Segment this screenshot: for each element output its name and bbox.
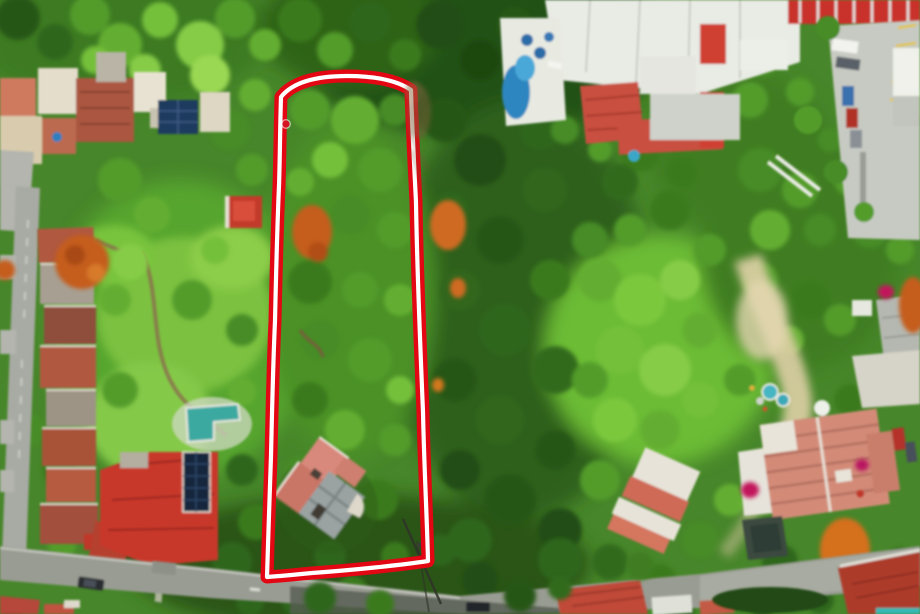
umbrella	[544, 32, 554, 42]
teal-roof-sliver	[876, 608, 920, 614]
small-red-house	[225, 196, 262, 228]
tiny-pool	[628, 150, 640, 162]
aerial-photo	[0, 0, 920, 614]
dark-car	[466, 602, 490, 612]
garden-pool	[172, 397, 252, 451]
red-car	[846, 108, 858, 128]
bougainvillea	[855, 459, 869, 471]
terrace-pool	[500, 18, 566, 126]
gate	[151, 561, 176, 575]
umbrella	[521, 34, 533, 46]
blue-car	[842, 86, 854, 106]
bougainvillea	[741, 482, 759, 498]
small-pool	[52, 132, 62, 142]
boundary-marker-dot	[282, 120, 289, 127]
bougainvillea	[878, 285, 894, 299]
white-umbrella	[814, 400, 830, 416]
aerial-photo-canvas	[0, 0, 920, 614]
umbrella	[534, 47, 546, 59]
